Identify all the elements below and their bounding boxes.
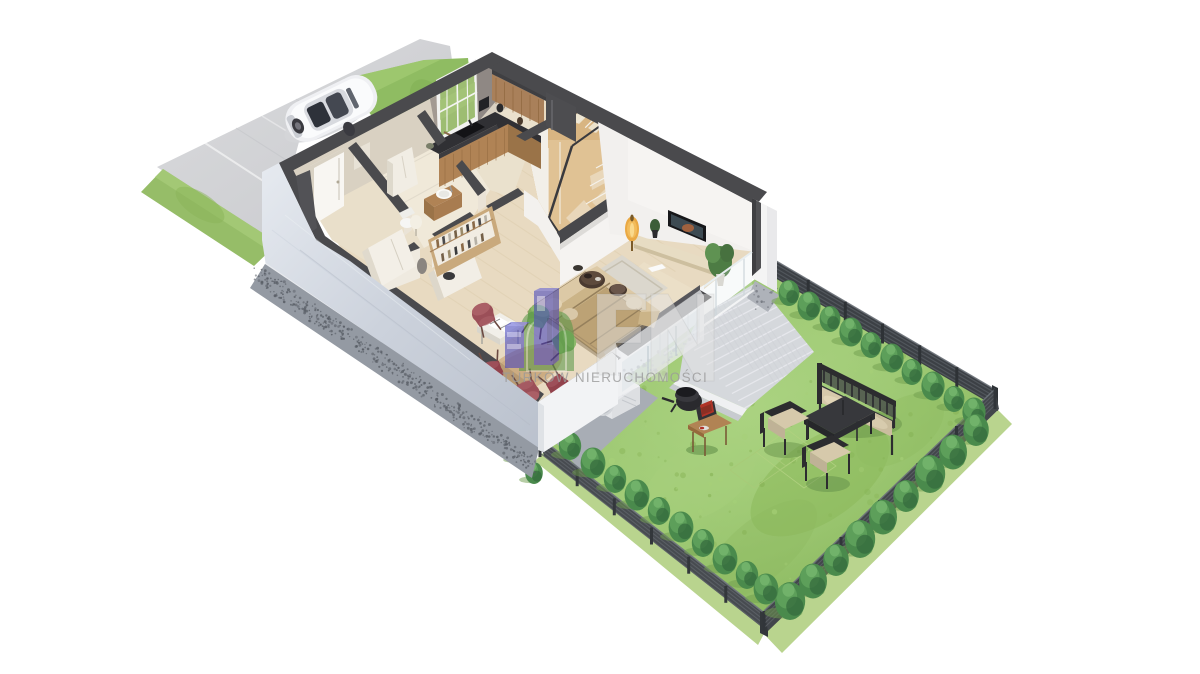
- svg-text:TURKÓW NIERUCHOMOŚCI: TURKÓW NIERUCHOMOŚCI: [502, 370, 708, 385]
